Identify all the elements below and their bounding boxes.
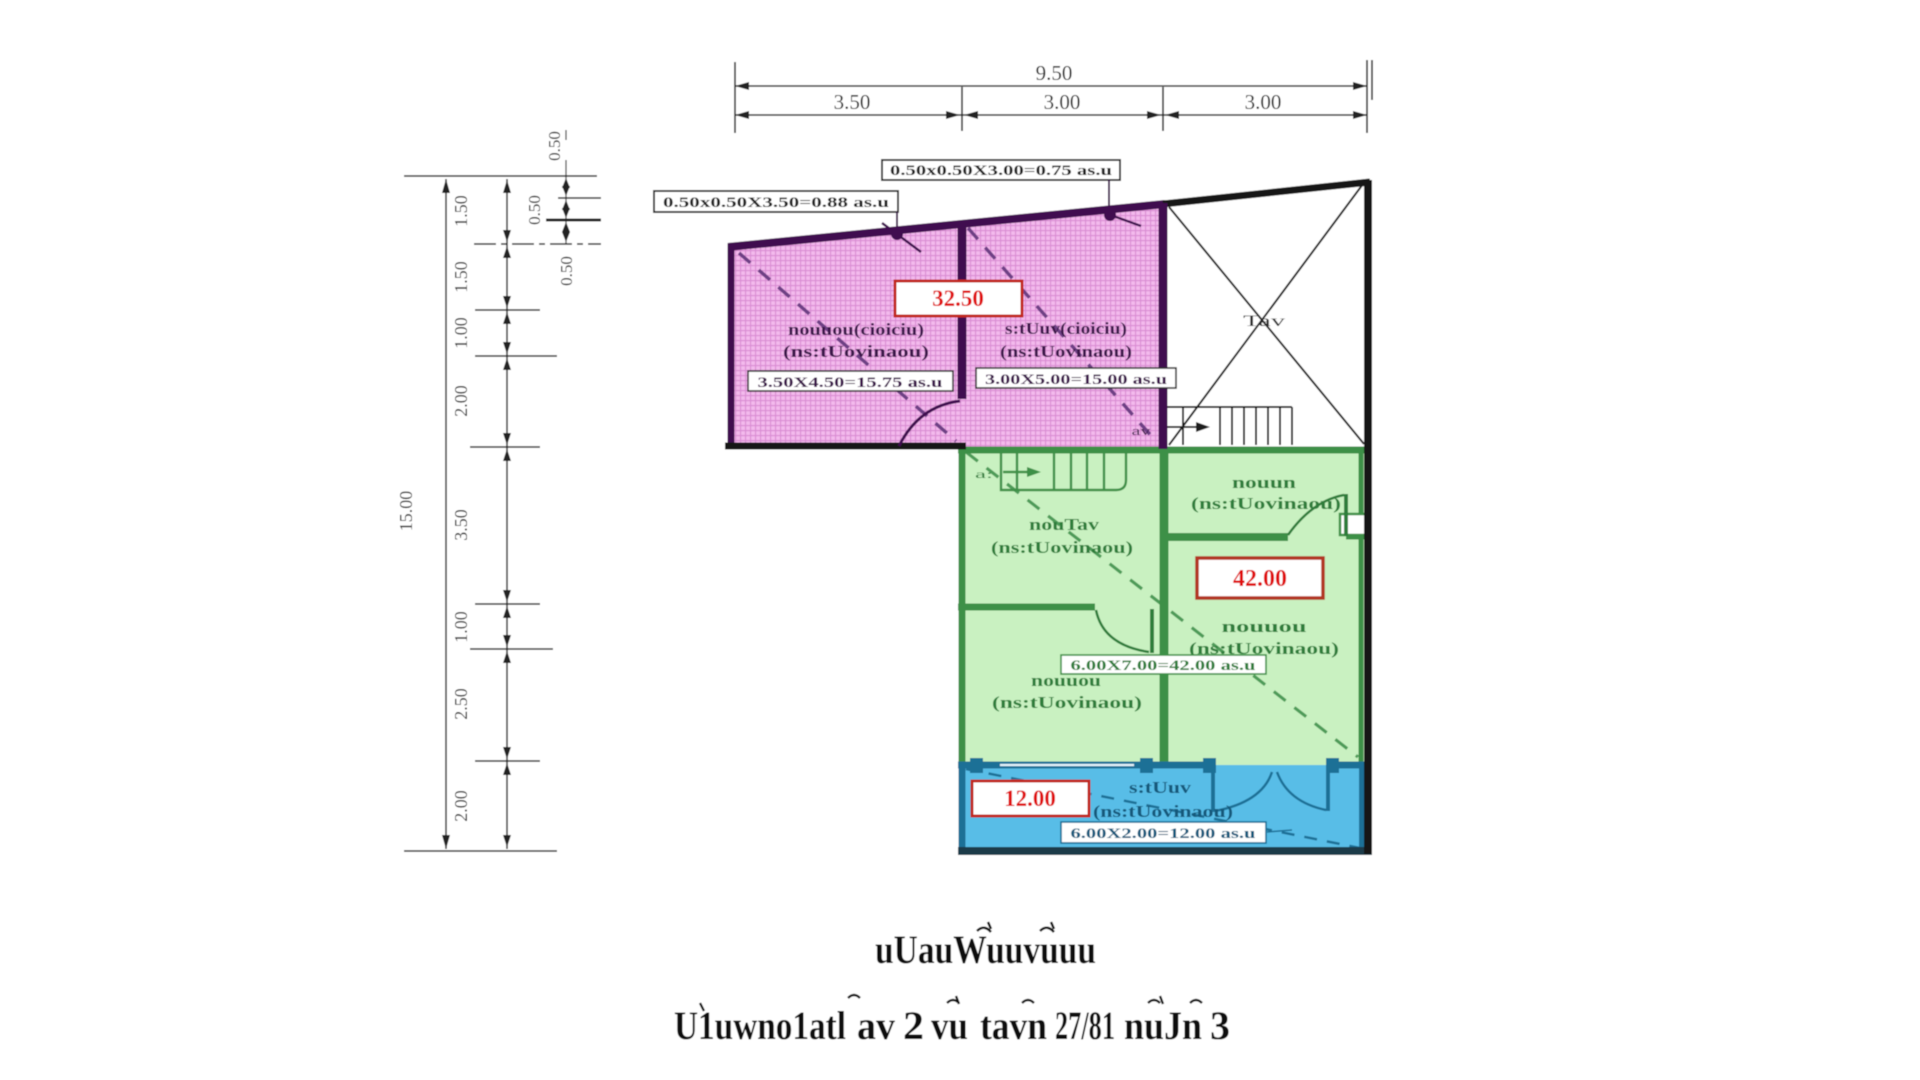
svg-text:(ns:tUovinaou): (ns:tUovinaou)	[1093, 802, 1233, 821]
svg-text:3.00: 3.00	[1044, 90, 1081, 114]
svg-text:15.00: 15.00	[396, 491, 416, 532]
svg-text:6.00X7.00=42.00 as.u: 6.00X7.00=42.00 as.u	[1071, 658, 1256, 674]
svg-text:9.50: 9.50	[1036, 61, 1073, 85]
svg-text:1.50: 1.50	[451, 261, 471, 293]
svg-text:0.50: 0.50	[545, 131, 564, 161]
svg-text:1.00: 1.00	[451, 611, 471, 643]
svg-text:av: av	[1132, 423, 1152, 438]
svg-text:Tav: Tav	[1243, 313, 1285, 330]
svg-text:3.50: 3.50	[834, 90, 871, 114]
svg-text:vu: vu	[931, 1003, 968, 1048]
svg-text:av: av	[857, 1003, 895, 1048]
svg-text:0.50x0.50X3.00=0.75 as.u: 0.50x0.50X3.00=0.75 as.u	[890, 163, 1112, 179]
svg-text:6.00X2.00=12.00 as.u: 6.00X2.00=12.00 as.u	[1071, 826, 1256, 842]
svg-text:nouuou: nouuou	[1222, 617, 1307, 636]
svg-text:42.00: 42.00	[1233, 566, 1287, 592]
svg-text:(ns:tUovinaou): (ns:tUovinaou)	[992, 693, 1142, 712]
svg-text:nouTav: nouTav	[1029, 515, 1100, 534]
svg-text:1.00: 1.00	[451, 317, 471, 349]
svg-text:2.00: 2.00	[451, 790, 471, 822]
svg-text:1.50: 1.50	[451, 195, 471, 227]
svg-text:s:tUuv(cioiciu): s:tUuv(cioiciu)	[1005, 319, 1127, 338]
svg-text:nouuou(cioiciu): nouuou(cioiciu)	[788, 320, 924, 339]
svg-text:uUauWuuvuuu: uUauWuuvuuu	[875, 927, 1096, 972]
svg-text:tavn: tavn	[980, 1003, 1047, 1048]
svg-text:0.50x0.50X3.50=0.88 as.u: 0.50x0.50X3.50=0.88 as.u	[663, 195, 889, 211]
svg-text:nouun: nouun	[1232, 473, 1297, 492]
svg-text:3.50: 3.50	[451, 509, 471, 541]
svg-text:(ns:tUovinaou): (ns:tUovinaou)	[783, 342, 929, 361]
svg-text:(ns:tUovinaou): (ns:tUovinaou)	[991, 538, 1133, 557]
svg-text:2.00: 2.00	[451, 385, 471, 417]
svg-text:27/81: 27/81	[1055, 1003, 1115, 1048]
svg-text:nuJn: nuJn	[1124, 1003, 1202, 1048]
svg-text:0.50: 0.50	[525, 195, 544, 225]
svg-text:12.00: 12.00	[1004, 786, 1056, 811]
svg-text:2: 2	[903, 1003, 924, 1048]
svg-text:2.50: 2.50	[451, 688, 471, 720]
svg-text:3.00X5.00=15.00 as.u: 3.00X5.00=15.00 as.u	[985, 372, 1167, 388]
svg-text:(ns:tUovinaou): (ns:tUovinaou)	[1000, 342, 1132, 361]
svg-text:3.00: 3.00	[1245, 90, 1282, 114]
svg-text:0.50: 0.50	[557, 256, 576, 286]
svg-text:s:tUuv: s:tUuv	[1129, 778, 1192, 797]
svg-text:3: 3	[1210, 1003, 1230, 1048]
svg-text:3.50X4.50=15.75 as.u: 3.50X4.50=15.75 as.u	[758, 375, 943, 391]
svg-text:32.50: 32.50	[932, 286, 984, 311]
svg-text:U1uwno1atl: U1uwno1atl	[674, 1003, 846, 1048]
svg-text:(ns:tUovinaou): (ns:tUovinaou)	[1191, 494, 1341, 513]
svg-text:a:: a:	[975, 467, 993, 481]
